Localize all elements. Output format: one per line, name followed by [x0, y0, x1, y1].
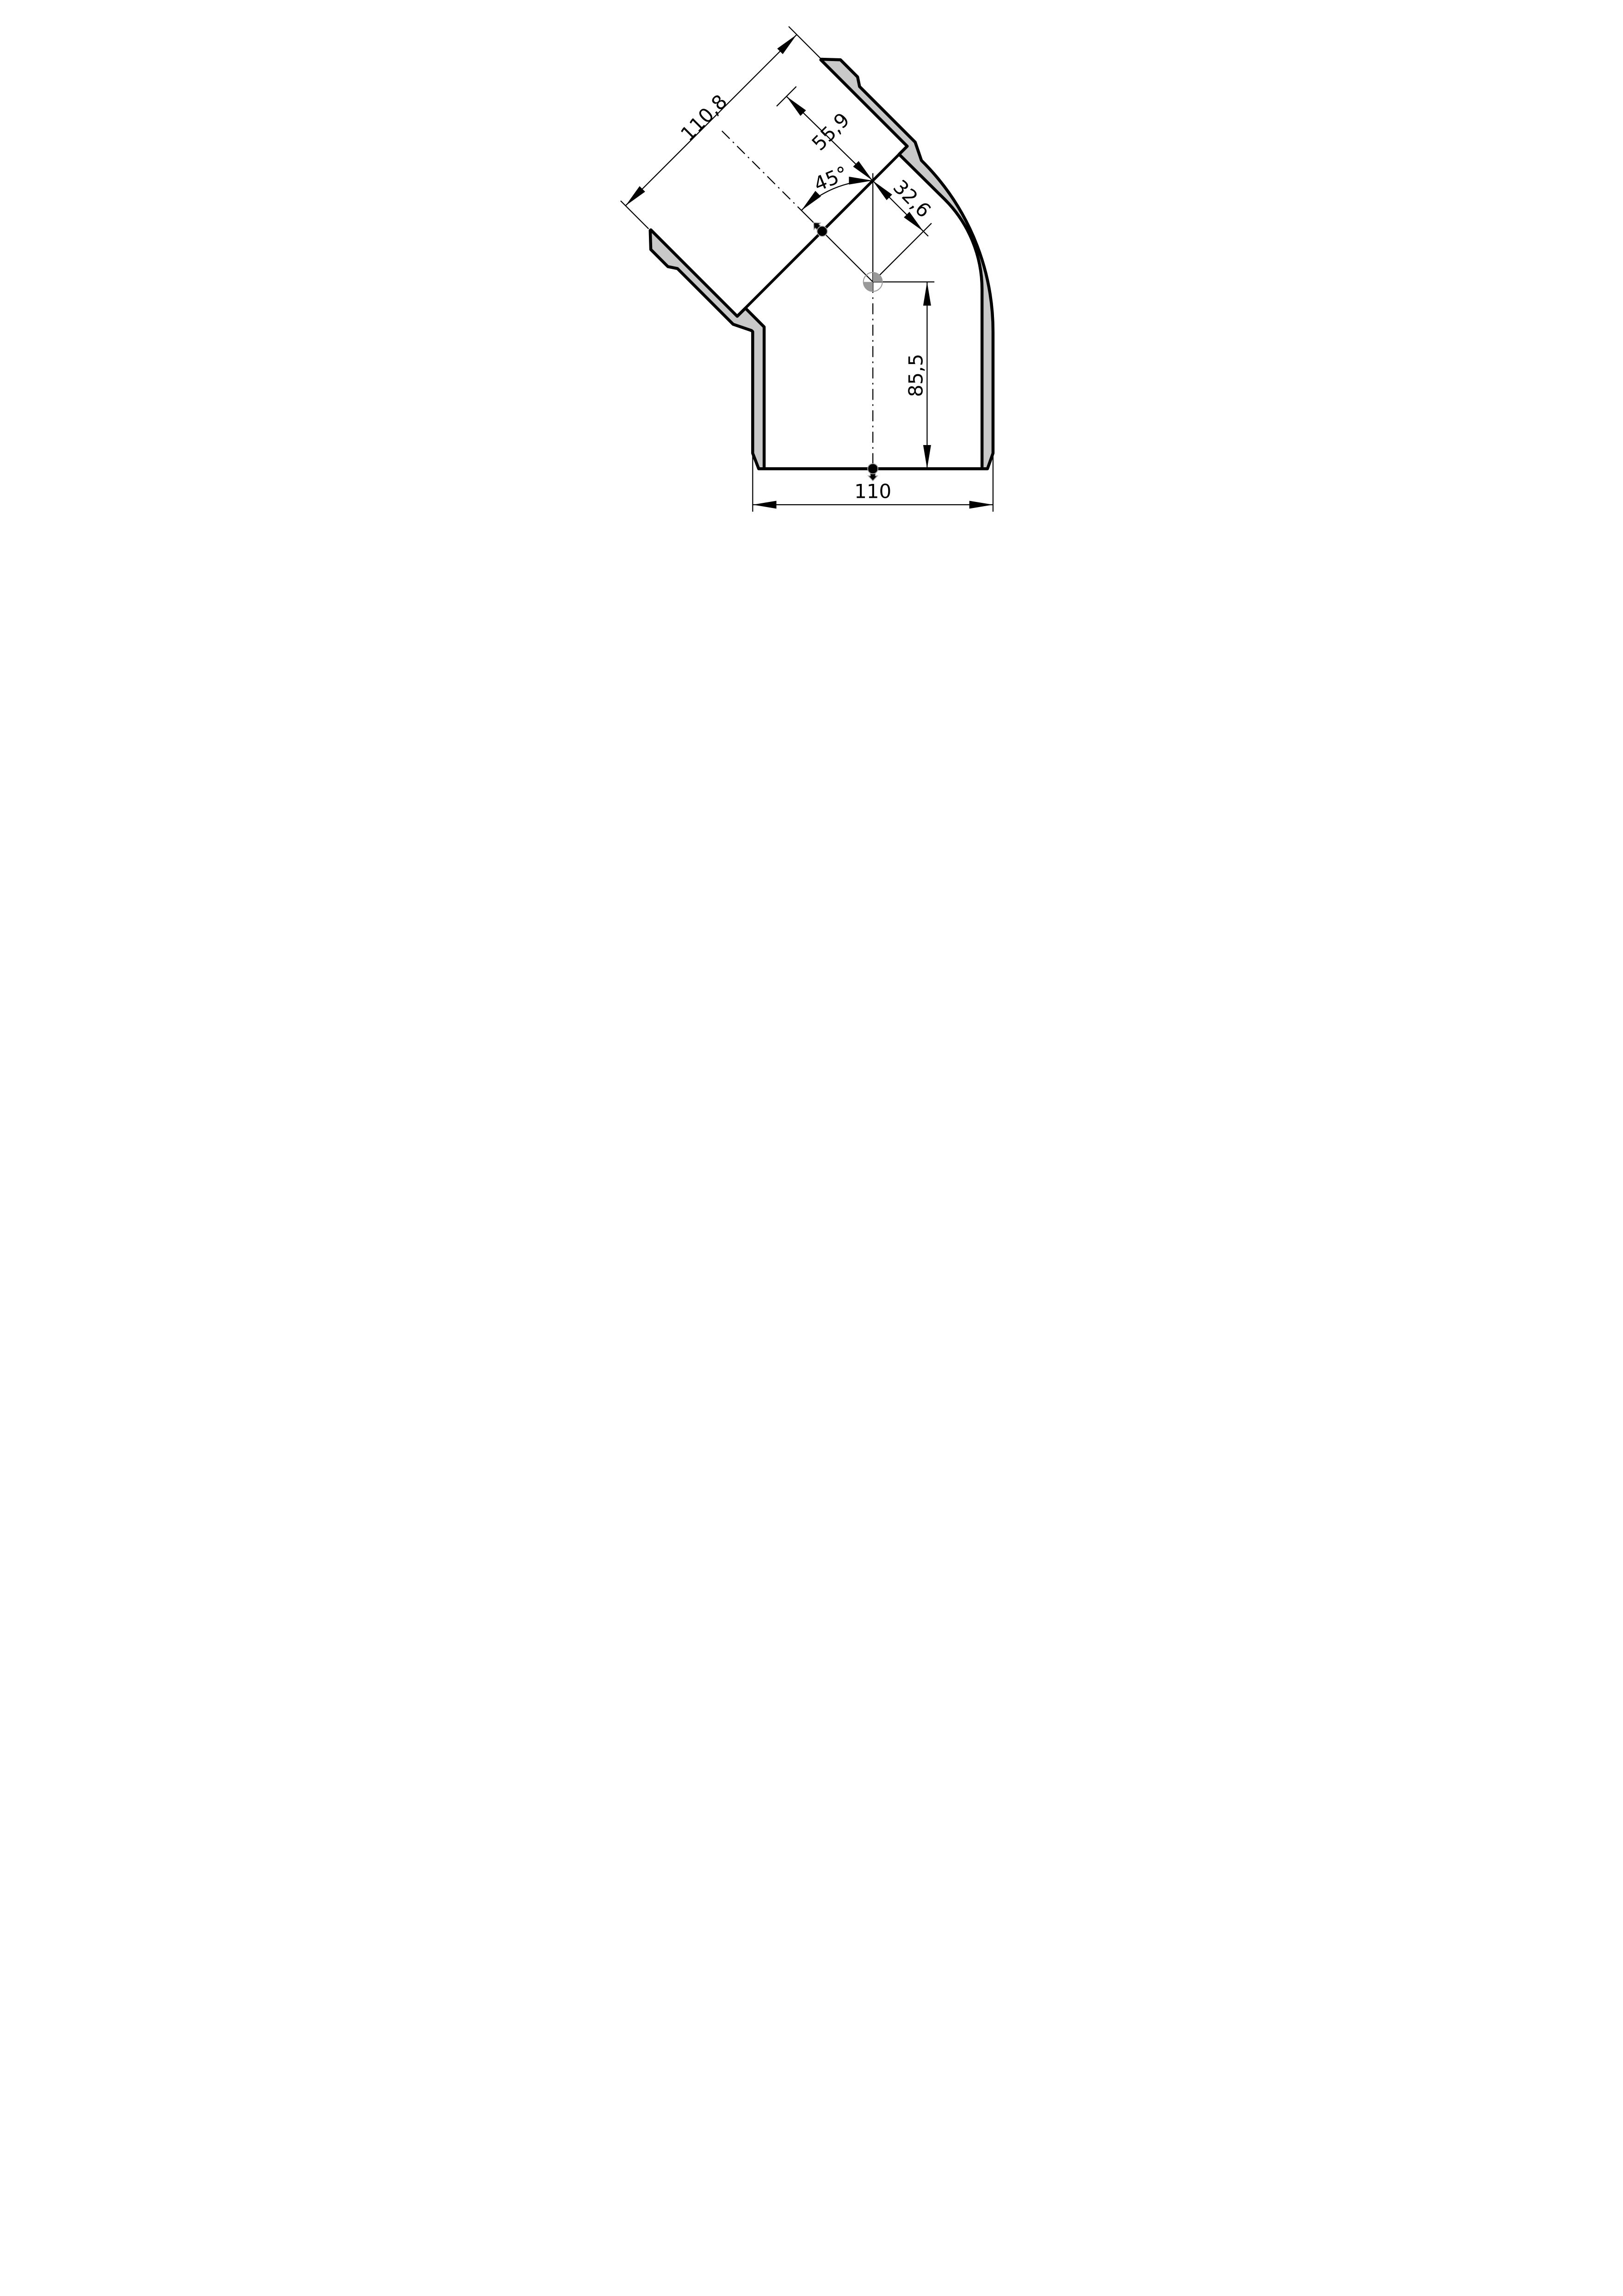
dimension-overall-width-arrowhead-0 — [753, 501, 776, 508]
dimension-elbow-angle-label: 45° — [810, 161, 851, 196]
dimension-socket-outer-diameter: 110,8 — [620, 26, 821, 229]
dimension-socket-outer-diameter-label: 110,8 — [676, 90, 731, 146]
dimension-socket-outer-diameter-arrowhead-0 — [777, 35, 796, 54]
dimension-socket-depth-arrowhead-0 — [786, 96, 806, 116]
dimension-socket-depth-label: 55,9 — [807, 108, 854, 155]
dimension-socket-depth-arrowhead-1 — [853, 161, 872, 180]
dimension-center-to-end-height: 85,5 — [904, 282, 931, 469]
dimension-overall-width-label: 110 — [854, 480, 891, 503]
bottom-outlet-flow-marker — [868, 464, 878, 481]
dimension-socket-outer-diameter-extension-0 — [620, 201, 648, 229]
dimension-elbow-angle-arrowhead-1 — [801, 191, 821, 210]
center-axis-extension-line — [873, 223, 932, 282]
pipe-wall-lower-left — [650, 230, 764, 469]
technical-drawing-canvas: 110,855,932,645°85,5110 — [609, 0, 1015, 574]
bottom-outlet-flow-marker-dot — [868, 464, 878, 474]
dimension-socket-depth: 55,9 — [777, 87, 873, 180]
dimension-shoulder-to-center-offset-arrowhead-0 — [872, 180, 892, 200]
dimension-center-to-end-height-label: 85,5 — [904, 354, 927, 397]
elbow-section-drawing: 110,855,932,645°85,5110 — [609, 0, 1015, 574]
inclined-axis-flow-marker-dot — [817, 226, 827, 236]
inclined-centerline-dashdot — [722, 131, 797, 207]
dimension-socket-outer-diameter-extension-1 — [789, 26, 821, 59]
dimension-overall-width-arrowhead-1 — [969, 501, 993, 508]
dimension-center-to-end-height-arrowhead-1 — [923, 445, 931, 469]
dimension-center-to-end-height-arrowhead-0 — [923, 282, 931, 305]
dimension-socket-outer-diameter-arrowhead-1 — [625, 186, 645, 205]
dimension-shoulder-to-center-offset: 32,6 — [872, 175, 935, 236]
page: { "drawing": { "type": "technical-sectio… — [0, 0, 1623, 574]
